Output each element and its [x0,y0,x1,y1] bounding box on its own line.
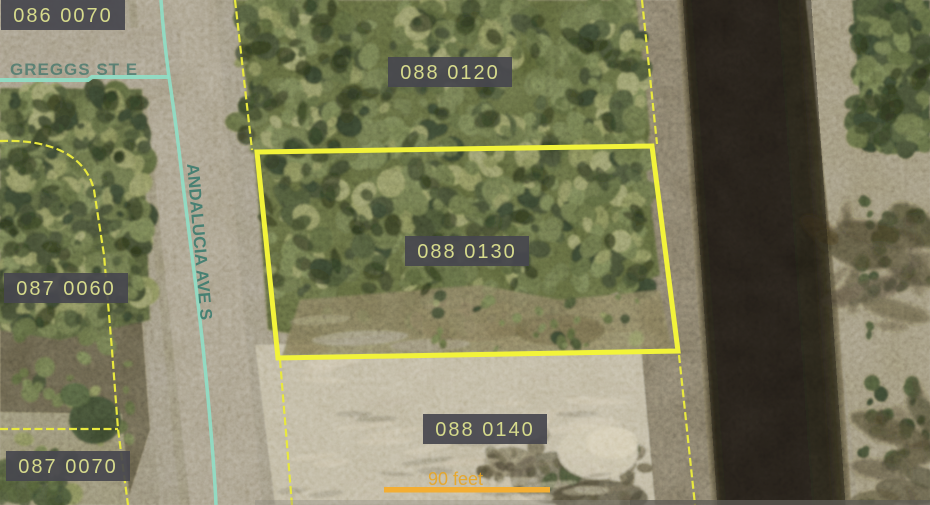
svg-text:088 0130: 088 0130 [417,241,516,263]
svg-text:086 0070: 086 0070 [13,5,112,27]
svg-text:GREGGS ST E: GREGGS ST E [10,60,138,79]
svg-text:90 feet: 90 feet [428,469,483,489]
svg-text:088 0120: 088 0120 [400,62,499,84]
svg-text:087 0070: 087 0070 [18,456,117,478]
svg-text:087 0060: 087 0060 [16,278,115,300]
svg-text:088 0140: 088 0140 [435,419,534,441]
